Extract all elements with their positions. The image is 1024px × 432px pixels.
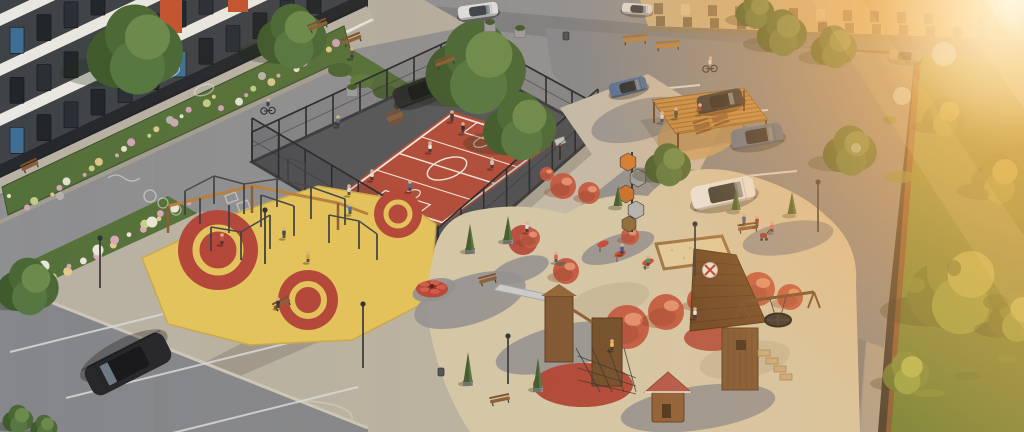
- lens-flare-dot: [932, 42, 956, 66]
- lens-flare-dot: [893, 87, 911, 105]
- courtyard-render-canvas: [0, 0, 1024, 432]
- sun-flare: [0, 0, 1024, 432]
- rendered-scene: [0, 0, 1024, 432]
- lens-flare-dot: [851, 143, 861, 153]
